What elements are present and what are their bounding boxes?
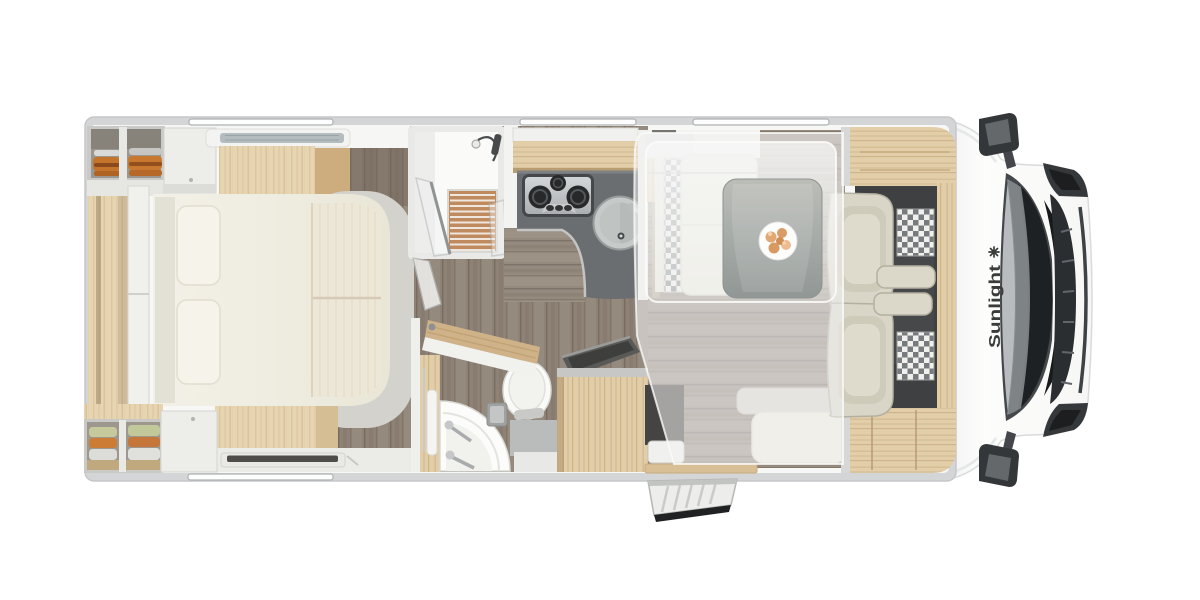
svg-text:Sunlight: Sunlight bbox=[987, 264, 1004, 348]
